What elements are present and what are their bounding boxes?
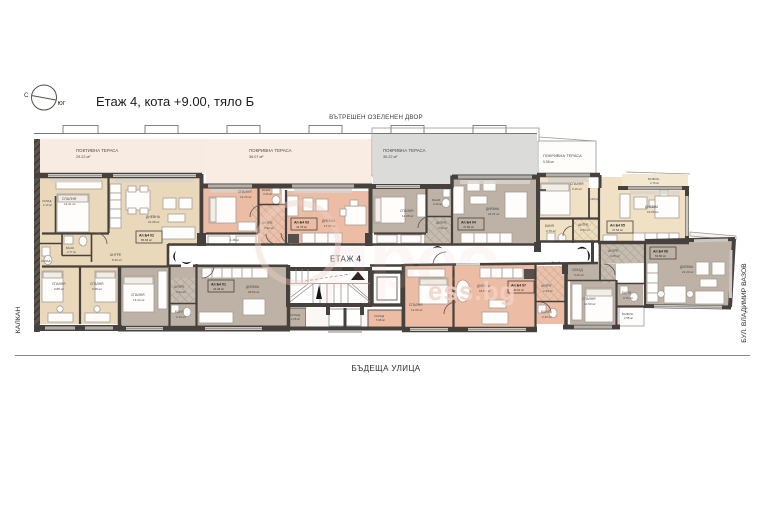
svg-text:ДНЕВНА: ДНЕВНА	[645, 205, 659, 209]
svg-text:ПОКРИВНА ТЕРАСА: ПОКРИВНА ТЕРАСА	[543, 153, 582, 158]
svg-text:СПАЛНЯ: СПАЛНЯ	[52, 282, 66, 286]
svg-text:9.58 м²: 9.58 м²	[543, 160, 555, 164]
svg-text:36.07 м²: 36.07 м²	[249, 155, 264, 159]
svg-text:2.75 м²: 2.75 м²	[546, 229, 556, 233]
svg-text:12.06 м²: 12.06 м²	[411, 308, 422, 312]
svg-text:юг: юг	[58, 100, 66, 107]
svg-text:9.88 м²: 9.88 м²	[54, 287, 64, 291]
svg-text:2.13 м²: 2.13 м²	[43, 203, 52, 207]
svg-text:7.92 м²: 7.92 м²	[264, 226, 274, 230]
svg-text:13.41 м²: 13.41 м²	[64, 202, 75, 206]
svg-text:АНТРЕ: АНТРЕ	[541, 284, 552, 288]
svg-text:2.55 м²: 2.55 м²	[624, 316, 633, 320]
svg-text:29.22 м²: 29.22 м²	[76, 155, 91, 159]
svg-text:5.46 м²: 5.46 м²	[574, 273, 584, 277]
svg-text:47.53 м²: 47.53 м²	[612, 228, 623, 232]
svg-text:БАНЯ: БАНЯ	[545, 224, 554, 228]
svg-text:СПАЛНЯ: СПАЛНЯ	[238, 190, 252, 194]
svg-text:СПАЛНЯ: СПАЛНЯ	[400, 209, 414, 213]
svg-text:13.44 м²: 13.44 м²	[133, 298, 144, 302]
svg-text:БУЛ. ВЛАДИМИР ВАЗОВ: БУЛ. ВЛАДИМИР ВАЗОВ	[741, 263, 748, 343]
svg-text:СПАЛНЯ: СПАЛНЯ	[131, 293, 145, 297]
svg-text:Ап Б4 05: Ап Б4 05	[610, 224, 625, 228]
svg-text:86.84 м²: 86.84 м²	[141, 238, 152, 242]
svg-text:Ап Б4 01: Ап Б4 01	[211, 283, 226, 287]
svg-text:БАНЯ: БАНЯ	[622, 291, 631, 295]
svg-text:41.78 м²: 41.78 м²	[296, 225, 307, 229]
svg-text:5.98 м²: 5.98 м²	[376, 318, 385, 322]
svg-text:ВЪТРЕШЕН ОЗЕЛЕНЕН ДВОР: ВЪТРЕШЕН ОЗЕЛЕНЕН ДВОР	[329, 114, 423, 121]
svg-text:БАНЯ: БАНЯ	[175, 310, 184, 314]
svg-text:Ап Б4 02: Ап Б4 02	[139, 234, 154, 238]
svg-text:42.28 м²: 42.28 м²	[213, 287, 224, 291]
svg-text:4.65 м²: 4.65 м²	[610, 254, 620, 258]
svg-text:9.19 м²: 9.19 м²	[572, 187, 582, 191]
svg-text:Етаж 4, кота +9.00, тяло Б: Етаж 4, кота +9.00, тяло Б	[96, 94, 254, 109]
svg-text:2.77 м²: 2.77 м²	[67, 250, 76, 254]
svg-text:22.51 м²: 22.51 м²	[488, 212, 499, 216]
svg-text:ПОКТИВНА ТЕРАСА: ПОКТИВНА ТЕРАСА	[76, 148, 118, 153]
svg-text:3.92 м²: 3.92 м²	[176, 290, 186, 294]
svg-text:2.51 м²: 2.51 м²	[580, 228, 590, 232]
svg-text:ДНЕВНА: ДНЕВНА	[680, 265, 694, 269]
svg-text:53.80 м²: 53.80 м²	[655, 254, 666, 258]
svg-text:АНТРЕ: АНТРЕ	[578, 223, 589, 227]
svg-text:КАЛКАН: КАЛКАН	[15, 307, 22, 334]
svg-text:9.28 м²: 9.28 м²	[92, 287, 102, 291]
svg-text:ДНЕВНА: ДНЕВНА	[146, 215, 161, 219]
svg-text:8.46 м²: 8.46 м²	[112, 258, 122, 262]
svg-text:12.16 м²: 12.16 м²	[240, 195, 251, 199]
svg-text:2.33 м²: 2.33 м²	[543, 289, 553, 293]
svg-text:Ап Б4 06: Ап Б4 06	[653, 250, 668, 254]
svg-text:19.05 м²: 19.05 м²	[647, 210, 658, 214]
svg-text:СКЛАД: СКЛАД	[572, 268, 583, 272]
svg-text:3.76 м²: 3.76 м²	[623, 296, 633, 300]
svg-text:БЪДЕЩА УЛИЦА: БЪДЕЩА УЛИЦА	[352, 364, 421, 373]
svg-text:28.84 м²: 28.84 м²	[248, 290, 259, 294]
svg-text:АНТРЕ: АНТРЕ	[608, 249, 619, 253]
svg-text:С: С	[24, 92, 29, 99]
svg-text:АНТРЕ: АНТРЕ	[110, 253, 122, 257]
svg-text:ess.bg: ess.bg	[428, 276, 516, 306]
svg-text:22.08 м²: 22.08 м²	[148, 220, 159, 224]
svg-text:Ап Б4 03: Ап Б4 03	[294, 221, 309, 225]
svg-text:2.10 м²: 2.10 м²	[176, 315, 186, 319]
svg-text:3.79 м²: 3.79 м²	[650, 181, 659, 185]
svg-text:БАНЯ: БАНЯ	[541, 310, 550, 314]
svg-text:10.60 м²: 10.60 м²	[584, 302, 595, 306]
svg-text:СКЛАД: СКЛАД	[41, 259, 50, 263]
svg-text:3.05 м²: 3.05 м²	[263, 192, 272, 196]
svg-text:АНТРЕ: АНТРЕ	[174, 285, 185, 289]
svg-text:35.22 м²: 35.22 м²	[383, 155, 398, 159]
svg-text:СКЛАД: СКЛАД	[590, 197, 599, 201]
svg-text:4.29 м²: 4.29 м²	[433, 202, 442, 206]
svg-text:2.08 м²: 2.08 м²	[291, 317, 300, 321]
svg-text:1.48 м²: 1.48 м²	[230, 238, 239, 242]
svg-text:2.43 м²: 2.43 м²	[542, 315, 552, 319]
svg-text:СПАЛНЯ: СПАЛНЯ	[582, 297, 596, 301]
svg-text:СПАЛНЯ: СПАЛНЯ	[62, 197, 77, 201]
svg-text:21.20 м²: 21.20 м²	[682, 270, 693, 274]
svg-text:ДНЕВНА: ДНЕВНА	[246, 285, 260, 289]
svg-text:ДНЕВНА: ДНЕВНА	[486, 207, 500, 211]
svg-text:СПАЛНЯ: СПАЛНЯ	[570, 182, 584, 186]
svg-text:ПОКРИВНА ТЕРАСА: ПОКРИВНА ТЕРАСА	[249, 148, 292, 153]
svg-text:СПАЛНЯ: СПАЛНЯ	[90, 282, 104, 286]
svg-text:ПОКРИВНА ТЕРАСА: ПОКРИВНА ТЕРАСА	[383, 148, 426, 153]
